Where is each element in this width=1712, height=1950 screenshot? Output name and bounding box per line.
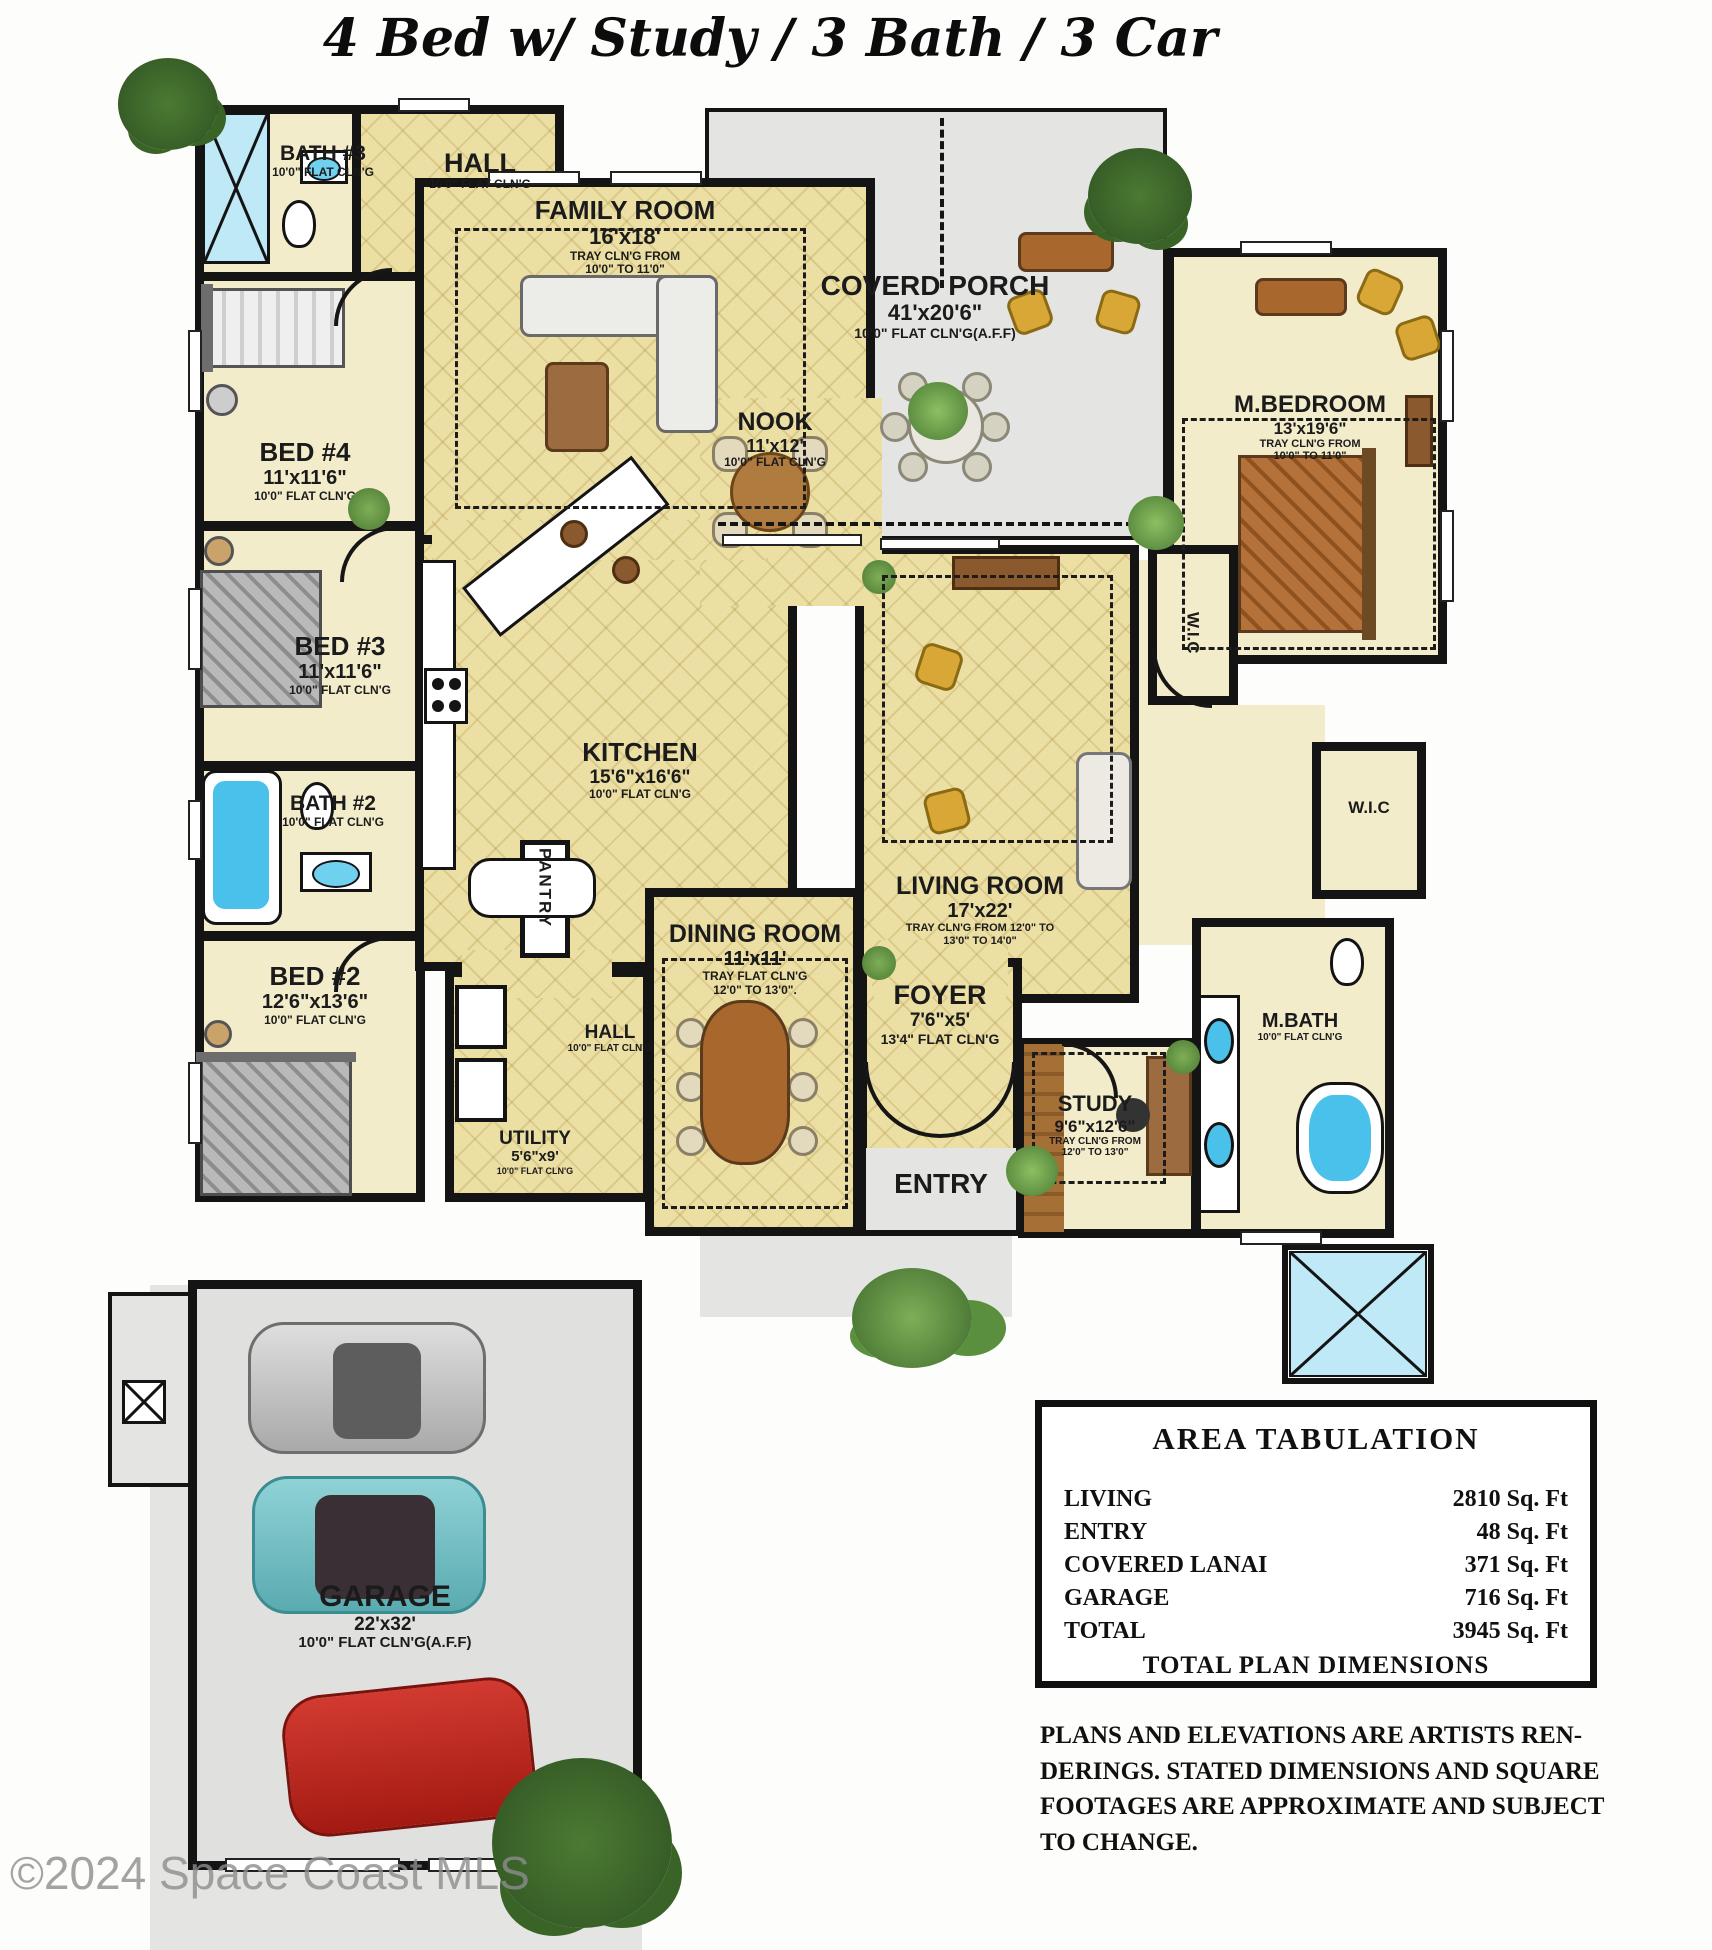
- area-tabulation-box: AREA TABULATION LIVING 2810 Sq. Ft ENTRY…: [1035, 1400, 1597, 1688]
- label-porch: COVERD PORCH 41'x20'6" 10'0" FLAT CLN'G(…: [790, 270, 1080, 342]
- bed4-headboard: [201, 284, 213, 372]
- table-row: COVERED LANAI 371 Sq. Ft: [1064, 1549, 1568, 1582]
- drain-x-icon: [125, 1383, 163, 1421]
- disclaimer-text: PLANS AND ELEVATIONS ARE ARTISTS REN- DE…: [1040, 1718, 1615, 1860]
- palm-study-front: [1006, 1146, 1058, 1196]
- porch-chair: [980, 412, 1010, 442]
- label-entry: ENTRY: [866, 1168, 1016, 1199]
- bed2-bed: [200, 1058, 352, 1196]
- kitchen-stove: [424, 668, 468, 724]
- row-value: 716 Sq. Ft: [1465, 1582, 1568, 1615]
- window-bed3: [188, 588, 202, 670]
- label-mbath: M.BATH 10'0" FLAT CLN'G: [1240, 1010, 1360, 1044]
- label-utility: UTILITY 5'6"x9' 10'0" FLAT CLN'G: [470, 1128, 600, 1176]
- row-label: TOTAL: [1064, 1615, 1146, 1648]
- label-living: LIVING ROOM 17'x22' TRAY CLN'G FROM 12'0…: [880, 872, 1080, 947]
- window-mbedroom-top: [1240, 241, 1332, 255]
- porch-edge-dashed: [718, 522, 1158, 526]
- row-value: 3945 Sq. Ft: [1453, 1615, 1568, 1648]
- master-hall-area: [1160, 705, 1325, 930]
- toilet-bath3: [282, 200, 316, 248]
- plan-title: 4 Bed w/ Study / 3 Bath / 3 Car: [0, 8, 1540, 69]
- label-mbedroom: M.BEDROOM 13'x19'6" TRAY CLN'G FROM 10'0…: [1210, 392, 1410, 463]
- utility-washer: [455, 985, 507, 1049]
- label-study: STUDY 9'6"x12'6" TRAY CLN'G FROM 12'0" T…: [1030, 1092, 1160, 1158]
- row-label: LIVING: [1064, 1483, 1152, 1516]
- label-family: FAMILY ROOM 16'x18' TRAY CLN'G FROM 10'0…: [500, 196, 750, 277]
- mbath-tub: [1296, 1082, 1384, 1194]
- mbath-sink: [1204, 1018, 1234, 1064]
- car-silver: [248, 1322, 486, 1454]
- window-bed2: [188, 1062, 202, 1144]
- label-hall-top: HALL 10'0" FLAT CLN'G: [400, 148, 560, 192]
- area-tabulation-rows: LIVING 2810 Sq. Ft ENTRY 48 Sq. Ft COVER…: [1064, 1483, 1568, 1648]
- spa-water-icon: [1288, 1250, 1428, 1378]
- porch-step-dashed: [940, 118, 944, 288]
- car-roof: [333, 1343, 421, 1439]
- area-tabulation-footer: TOTAL PLAN DIMENSIONS: [1042, 1652, 1590, 1680]
- shower-bath3: [202, 112, 270, 264]
- label-bed3: BED #3 11'x11'6" 10'0" FLAT CLN'G: [250, 632, 430, 697]
- study-plant: [1166, 1040, 1200, 1074]
- label-bath2: BATH #2 10'0" FLAT CLN'G: [268, 792, 398, 829]
- slider-living-porch: [880, 538, 1000, 550]
- mbath-sink: [1204, 1122, 1234, 1168]
- floor-plan-page: 4 Bed w/ Study / 3 Bath / 3 Car: [0, 0, 1712, 1950]
- window-hall-top: [398, 98, 470, 112]
- tree-bottom-center: [492, 1758, 672, 1928]
- bed2-headboard: [196, 1052, 356, 1062]
- row-label: COVERED LANAI: [1064, 1549, 1267, 1582]
- bed4-nightstand: [206, 384, 238, 416]
- label-wic1: W.I.C: [1152, 612, 1234, 658]
- window-family-rear2: [610, 171, 702, 185]
- row-value: 2810 Sq. Ft: [1453, 1483, 1568, 1516]
- sink-basin: [312, 860, 360, 888]
- kitchen-stool: [612, 556, 640, 584]
- window-mbedroom-right2: [1440, 510, 1454, 602]
- spa-bay: [1282, 1244, 1434, 1384]
- window-bath2: [188, 800, 202, 860]
- label-pantry: PANTRY: [524, 848, 566, 952]
- palm-porch: [908, 382, 968, 440]
- bed4-plant: [348, 488, 390, 530]
- label-bed2: BED #2 12'6"x13'6" 10'0" FLAT CLN'G: [215, 962, 415, 1027]
- slider-nook-porch: [722, 534, 862, 546]
- living-plant: [862, 946, 896, 980]
- bed3-nightstand: [204, 536, 234, 566]
- utility-dryer: [455, 1058, 507, 1122]
- row-value: 371 Sq. Ft: [1465, 1549, 1568, 1582]
- window-mbedroom-right: [1440, 330, 1454, 422]
- label-wic2: W.I.C: [1322, 798, 1416, 817]
- label-hall-lower: HALL 10'0" FLAT CLN'G: [555, 1022, 665, 1054]
- label-dining: DINING ROOM 11'x11' TRAY FLAT CLN'G 12'0…: [655, 920, 855, 997]
- bed4-bed: [205, 288, 345, 368]
- shower-x-icon: [205, 115, 267, 261]
- row-label: GARAGE: [1064, 1582, 1169, 1615]
- tray-outline-living: [882, 575, 1113, 843]
- palm-master-side: [1128, 496, 1184, 550]
- sink-bath2: [300, 852, 372, 892]
- row-label: ENTRY: [1064, 1516, 1147, 1549]
- table-row: LIVING 2810 Sq. Ft: [1064, 1483, 1568, 1516]
- table-row: GARAGE 716 Sq. Ft: [1064, 1582, 1568, 1615]
- tree-top-left: [118, 58, 218, 150]
- tub-water: [1309, 1095, 1371, 1181]
- porch-sofa: [1018, 232, 1114, 272]
- area-tabulation-title: AREA TABULATION: [1042, 1421, 1590, 1457]
- table-row: ENTRY 48 Sq. Ft: [1064, 1516, 1568, 1549]
- table-row: TOTAL 3945 Sq. Ft: [1064, 1615, 1568, 1648]
- porch-chair: [880, 412, 910, 442]
- mbath-toilet: [1330, 938, 1364, 986]
- drain-icon: [122, 1380, 166, 1424]
- label-kitchen: KITCHEN 15'6"x16'6" 10'0" FLAT CLN'G: [545, 738, 735, 802]
- label-bath3: BATH #3 10'0" FLAT CLN'G: [258, 142, 388, 179]
- window-mbath: [1240, 1231, 1322, 1245]
- label-foyer: FOYER 7'6"x5' 13'4" FLAT CLN'G: [858, 980, 1022, 1047]
- mbed-sofa: [1255, 278, 1347, 316]
- watermark: ©2024 Space Coast MLS: [10, 1846, 530, 1900]
- palm-front-entry: [852, 1268, 972, 1368]
- tub-water: [213, 781, 269, 909]
- window-bed4: [188, 330, 202, 412]
- label-nook: NOOK 11'x12' 10'0" FLAT CLN'G: [690, 408, 860, 470]
- room-wic2: [1312, 742, 1426, 899]
- label-garage: GARAGE 22'x32' 10'0" FLAT CLN'G(A.F.F): [275, 1580, 495, 1652]
- kitchen-stool: [560, 520, 588, 548]
- row-value: 48 Sq. Ft: [1477, 1516, 1568, 1549]
- burner-icon: [427, 671, 465, 721]
- tree-top-right: [1088, 148, 1192, 244]
